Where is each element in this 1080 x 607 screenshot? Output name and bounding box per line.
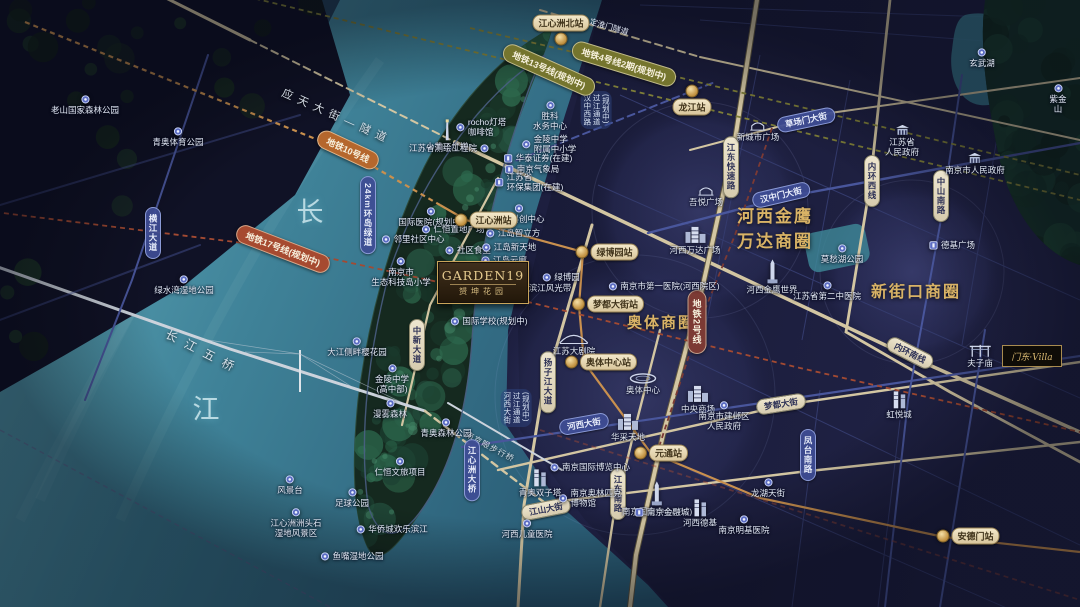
poi-text: 江岛新天地: [494, 242, 537, 252]
road-name-badge: 梦都大街: [755, 392, 807, 416]
dot-icon: [441, 418, 450, 427]
dot-icon: [445, 246, 454, 255]
road-name-badge: 中山南路: [933, 170, 949, 222]
road-name-badge: 江心洲大桥: [464, 439, 480, 501]
road-inline-name: 长江五桥: [163, 327, 244, 378]
dot-icon: [977, 48, 986, 57]
stadium-icon: [629, 373, 657, 384]
poi-text: 华泰证券(在建): [516, 153, 573, 163]
dot-icon: [80, 95, 89, 104]
road-name: 梦都大街: [763, 396, 798, 411]
road-name-badge: 定淮门隧道: [581, 13, 636, 40]
road-name-badge: 凤台南路: [800, 429, 816, 481]
poi-label: 南京市人民政府: [945, 153, 1005, 175]
poi-label: 邻里社区中心: [381, 234, 444, 244]
crossing-note-line: 汉中西路: [583, 94, 591, 126]
station-name: 绿博园站: [590, 244, 638, 261]
road-name: 江心洲大桥: [467, 446, 477, 494]
poi-text: 金陵中学 (高中部): [375, 374, 409, 394]
river-name-char: 长: [297, 191, 324, 230]
plaque-divider: [450, 284, 516, 285]
project-name-en: GARDEN19: [442, 268, 524, 283]
road-name: 河西大街: [566, 416, 601, 432]
mendong-text: 门东·Villa: [1011, 350, 1052, 363]
road-name: 24km环岛绿道: [363, 183, 373, 247]
poi-label: 河西儿童医院: [501, 519, 552, 539]
twin-towers-icon: [692, 496, 708, 516]
gov-icon: [968, 153, 981, 164]
station-name: 江心洲站: [469, 212, 517, 229]
dot-icon: [837, 244, 846, 253]
poi-text: 虹悦城: [886, 409, 912, 419]
road-name: 横江大道: [148, 214, 158, 252]
poi-label: 江岛智立方: [486, 228, 541, 238]
crossing-note-line: 过江通道: [512, 392, 520, 424]
station-name: 龙江站: [672, 99, 711, 116]
dot-icon: [320, 552, 329, 561]
dot-icon: [421, 225, 430, 234]
dot-icon: [387, 364, 396, 373]
station-badge: 元通站: [634, 445, 688, 462]
station-name: 奥体中心站: [580, 354, 637, 371]
dot-icon: [356, 525, 365, 534]
poi-text: 滨江风光带: [529, 283, 572, 293]
poi-text: 邻里社区中心: [393, 234, 444, 244]
twin-towers-icon: [532, 466, 548, 486]
road-name: 定淮门隧道: [589, 17, 630, 37]
dot-icon: [480, 144, 489, 153]
sq-icon: [504, 154, 513, 163]
poi-text: 莫愁湖公园: [821, 254, 864, 264]
poi-label: 华采天地: [611, 412, 645, 442]
poi-label: 新城市广场: [737, 120, 780, 142]
poi-text: 南京市人民政府: [945, 165, 1005, 175]
road-name-badge: 内环南线: [884, 335, 936, 372]
poi-text: 紫金山: [1047, 94, 1069, 114]
metro-line-name: 地铁2号线: [692, 299, 702, 345]
metro-station-icon: [575, 246, 588, 259]
river-char: 长: [297, 198, 324, 229]
dot-icon: [522, 140, 531, 149]
metro-line-badge: 地铁2号线: [688, 290, 707, 354]
poi-label: 南京国际博览中心: [550, 462, 630, 472]
poi-text: 绿水湾湿地公园: [154, 285, 214, 295]
poi-label: 莫愁湖公园: [821, 244, 864, 264]
poi-text: 大江侧畔樱花园: [327, 347, 387, 357]
poi-label: 虹悦城: [886, 388, 912, 419]
station-badge: 奥体中心站: [565, 354, 637, 371]
poi-label: 南京明基医院: [718, 515, 769, 535]
station-badge: 安德门站: [936, 528, 999, 545]
poi-label: 鱼嘴湿地公园: [320, 551, 383, 561]
metro-line-name: 地铁10号线: [325, 136, 371, 165]
poi-text: 新城市广场: [737, 132, 780, 142]
poi-text: 南京奥林匹克 博物馆: [570, 488, 621, 508]
poi-text: 华侨城欢乐滨江: [368, 524, 428, 534]
poi-text: 鱼嘴湿地公园: [332, 551, 383, 561]
road-inline-text: 长江五桥: [163, 325, 246, 378]
poi-text: 江苏省 环保集团(在建): [507, 172, 564, 192]
poi-text: 夫子庙: [967, 358, 993, 368]
tower-icon: [766, 259, 778, 283]
twin-towers-icon: [891, 388, 907, 408]
poi-label: 金陵中学 附属中小学: [522, 134, 577, 154]
poi-text: rocho灯塔 咖啡馆: [468, 117, 506, 137]
poi-label: 夫子庙: [967, 342, 993, 368]
poi-text: 青奥森林公园: [420, 428, 471, 438]
poi-label: 江苏省 人民政府: [885, 125, 919, 157]
road-name-badge: 横江大道: [145, 207, 161, 259]
poi-label: 国际学校(规划中): [450, 316, 527, 326]
dot-icon: [381, 235, 390, 244]
poi-label: 足球公园: [335, 488, 369, 508]
road-name: 中山南路: [936, 177, 946, 215]
poi-text: 南京市建邺区 人民政府: [698, 411, 749, 431]
poi-label: 青奥体育公园: [152, 127, 203, 147]
station-badge: 绿博园站: [575, 244, 638, 261]
poi-label: 胜科 水务中心: [533, 101, 567, 131]
poi-label: 大江侧畔樱花园: [327, 337, 387, 357]
poi-text: 河西德基: [683, 517, 717, 527]
poi-text: 国际学校(规划中): [462, 316, 527, 326]
dot-icon: [396, 257, 405, 266]
metro-station-icon: [565, 356, 578, 369]
river-crossing-note: 汉中西路过江通道(规划中): [581, 91, 612, 129]
road-name: 凤台南路: [803, 436, 813, 474]
poi-label: 华侨城欢乐滨江: [356, 524, 428, 534]
map-root: GARDEN19 赟坤花园 门东·Villa 老山国家森林公园青奥体育公园绿水湾…: [0, 0, 1080, 607]
dot-icon: [285, 475, 294, 484]
metro-station-icon: [554, 33, 567, 46]
poi-label: 奥体中心: [626, 373, 660, 395]
metro-station-icon: [572, 298, 585, 311]
sq-icon: [635, 508, 644, 517]
poi-label: 绿博园: [542, 272, 580, 282]
dot-icon: [173, 127, 182, 136]
poi-text: 漫雾森林: [373, 409, 407, 419]
zone-text: 奥体商圈: [627, 315, 695, 332]
poi-text: 奥体中心: [626, 385, 660, 395]
dot-icon: [347, 488, 356, 497]
station-badge: 江心洲站: [454, 212, 517, 229]
dome-icon: [698, 185, 714, 196]
dot-icon: [450, 317, 459, 326]
road-name-badge: 草场门大街: [776, 106, 837, 134]
station-name: 江心洲北站: [532, 15, 589, 32]
poi-text: 仁恒文旅项目: [374, 467, 425, 477]
poi-text: 华采天地: [611, 432, 645, 442]
station-badge: 江心洲北站: [532, 15, 589, 46]
dot-icon: [822, 281, 831, 290]
poi-text: 河西儿童医院: [501, 529, 552, 539]
road-name: 扬子江大道: [543, 358, 553, 406]
tower-icon: [651, 481, 663, 505]
dot-icon: [486, 229, 495, 238]
dot-icon: [352, 337, 361, 346]
poi-label: 绿水湾湿地公园: [154, 275, 214, 295]
poi-text: 江苏省 人民政府: [885, 137, 919, 157]
dot-icon: [482, 243, 491, 252]
road-name-badge: 河西大街: [558, 412, 610, 436]
poi-label: 南京奥林匹克 博物馆: [558, 488, 621, 508]
poi-label: 江苏省测绘工程院: [409, 143, 489, 153]
metro-line-name: 地铁4号线2期(规划中): [580, 47, 667, 82]
poi-text: 胜科 水务中心: [533, 111, 567, 131]
poi-text: 青奥双子塔: [519, 487, 562, 497]
poi-label: 青奥森林公园: [420, 418, 471, 438]
poi-label: 青奥双子塔: [519, 466, 562, 497]
poi-label: 风景台: [277, 475, 303, 495]
river-crossing-note: 河西大街过江通道(规划中): [501, 389, 532, 427]
theater-icon: [559, 334, 589, 345]
project-name-cn: 赟坤花园: [459, 286, 507, 297]
dot-icon: [179, 275, 188, 284]
poi-label: 玄武湖: [969, 48, 995, 68]
poi-text: 绿博园: [554, 272, 580, 282]
poi-label: 江苏省 环保集团(在建): [495, 172, 564, 192]
road-name-badge: 内环西线: [864, 155, 880, 207]
poi-text: 吾悦广场: [689, 197, 723, 207]
poi-label: 江苏省第二中医院: [793, 281, 861, 301]
poi-text: 青奥体育公园: [152, 137, 203, 147]
zone-text: 新街口商圈: [871, 284, 961, 301]
poi-label: 南京市第一医院(河西院区): [608, 281, 719, 291]
station-name: 安德门站: [951, 528, 999, 545]
poi-label: 江岛新天地: [482, 242, 537, 252]
crossing-note-line: (规划中): [601, 94, 609, 126]
station-name: 梦都大街站: [587, 296, 644, 313]
dot-icon: [542, 273, 551, 282]
big-building-icon: [616, 412, 640, 431]
metro-station-icon: [685, 85, 698, 98]
poi-text: 南京国际博览中心: [562, 462, 630, 472]
dot-icon: [385, 399, 394, 408]
dot-icon: [1054, 84, 1063, 93]
poi-text: 江心洲洲头石 湿地风景区: [270, 518, 321, 538]
poi-label: 紫金山: [1047, 84, 1069, 114]
poi-text: 风景台: [277, 485, 303, 495]
station-badge: 梦都大街站: [572, 296, 644, 313]
project-logo-plaque: GARDEN19 赟坤花园: [437, 261, 529, 304]
dot-icon: [719, 401, 728, 410]
poi-label: 河西万达广场: [669, 225, 720, 255]
poi-text: 江苏省第二中医院: [793, 291, 861, 301]
poi-text: 龙湖天街: [751, 488, 785, 498]
road-name-badge: 24km环岛绿道: [360, 176, 376, 254]
road-name: 江东快速路: [726, 143, 736, 191]
poi-label: 龙湖天街: [751, 478, 785, 498]
dot-icon: [291, 508, 300, 517]
road-name: 中新大道: [412, 326, 422, 364]
station-badge: 龙江站: [672, 85, 711, 116]
poi-text: 江苏省测绘工程院: [409, 143, 477, 153]
metro-line-badge: 地铁17号线(规划中): [233, 222, 332, 275]
business-circle-label: 奥体商圈: [627, 312, 695, 333]
poi-text: 金陵中学 附属中小学: [534, 134, 577, 154]
dot-icon: [395, 457, 404, 466]
poi-label: 老山国家森林公园: [51, 95, 119, 115]
road-name-badge: 江东快速路: [723, 136, 739, 198]
poi-label: 南京市建邺区 人民政府: [698, 401, 749, 431]
poi-label: 吾悦广场: [689, 185, 723, 207]
poi-text: 河西万达广场: [669, 245, 720, 255]
poi-label: 南京金融城: [635, 507, 690, 517]
poi-label: 华泰证券(在建): [504, 153, 573, 163]
sq-icon: [495, 178, 504, 187]
poi-text: 玄武湖: [969, 58, 995, 68]
dot-icon: [426, 207, 435, 216]
road-name-badge: 扬子江大道: [540, 351, 556, 413]
road-name-badge: 中新大道: [409, 319, 425, 371]
poi-text: 南京明基医院: [718, 525, 769, 535]
business-circle-label: 新街口商圈: [871, 278, 961, 302]
dot-icon: [456, 123, 465, 132]
station-name: 元通站: [649, 445, 688, 462]
poi-label: 漫雾森林: [373, 399, 407, 419]
dot-icon: [763, 478, 772, 487]
poi-label: 南京市 生态科技岛小学: [371, 257, 431, 287]
business-circle-label: 河西金鹰 万达商圈: [737, 202, 813, 252]
sq-icon: [929, 241, 938, 250]
big-building-icon: [683, 225, 707, 244]
river-name-char: 江: [193, 388, 220, 427]
road-name: 草场门大街: [784, 111, 828, 130]
metro-station-icon: [936, 530, 949, 543]
dome-icon: [750, 120, 766, 131]
poi-text: 老山国家森林公园: [51, 105, 119, 115]
crossing-note-line: 过江通道: [592, 94, 600, 126]
road-name: 内环西线: [867, 162, 877, 200]
mendong-villa-plaque: 门东·Villa: [1002, 345, 1062, 367]
poi-label: 德基广场: [929, 240, 975, 250]
dot-icon: [545, 101, 554, 110]
crossing-note-line: (规划中): [521, 392, 529, 424]
poi-text: 河西金鹰世界: [746, 284, 797, 294]
poi-text: 足球公园: [335, 498, 369, 508]
poi-text: 江岛智立方: [498, 228, 541, 238]
metro-station-icon: [454, 214, 467, 227]
map-labels-layer: GARDEN19 赟坤花园 门东·Villa 老山国家森林公园青奥体育公园绿水湾…: [0, 0, 1080, 607]
poi-label: 金陵中学 (高中部): [375, 364, 409, 394]
lighthouse-icon: [442, 118, 451, 140]
dot-icon: [522, 519, 531, 528]
poi-label: 河西金鹰世界: [746, 259, 797, 294]
poi-label: 江心洲洲头石 湿地风景区: [270, 508, 321, 538]
gate-icon: [969, 342, 991, 357]
crossing-note-line: 河西大街: [503, 392, 511, 424]
road-name: 内环南线: [893, 341, 928, 365]
poi-text: 德基广场: [941, 240, 975, 250]
poi-label: 仁恒文旅项目: [374, 457, 425, 477]
poi-text: 南京市第一医院(河西院区): [620, 281, 719, 291]
metro-line-name: 地铁17号线(规划中): [244, 231, 321, 269]
dot-icon: [739, 515, 748, 524]
river-char: 江: [193, 395, 220, 426]
dot-icon: [608, 282, 617, 291]
poi-label: rocho灯塔 咖啡馆: [456, 117, 506, 137]
gov-icon: [895, 125, 908, 136]
zone-text: 河西金鹰 万达商圈: [737, 207, 813, 251]
poi-label: 河西德基: [683, 496, 717, 527]
poi-text: 南京市 生态科技岛小学: [371, 267, 431, 287]
metro-station-icon: [634, 447, 647, 460]
